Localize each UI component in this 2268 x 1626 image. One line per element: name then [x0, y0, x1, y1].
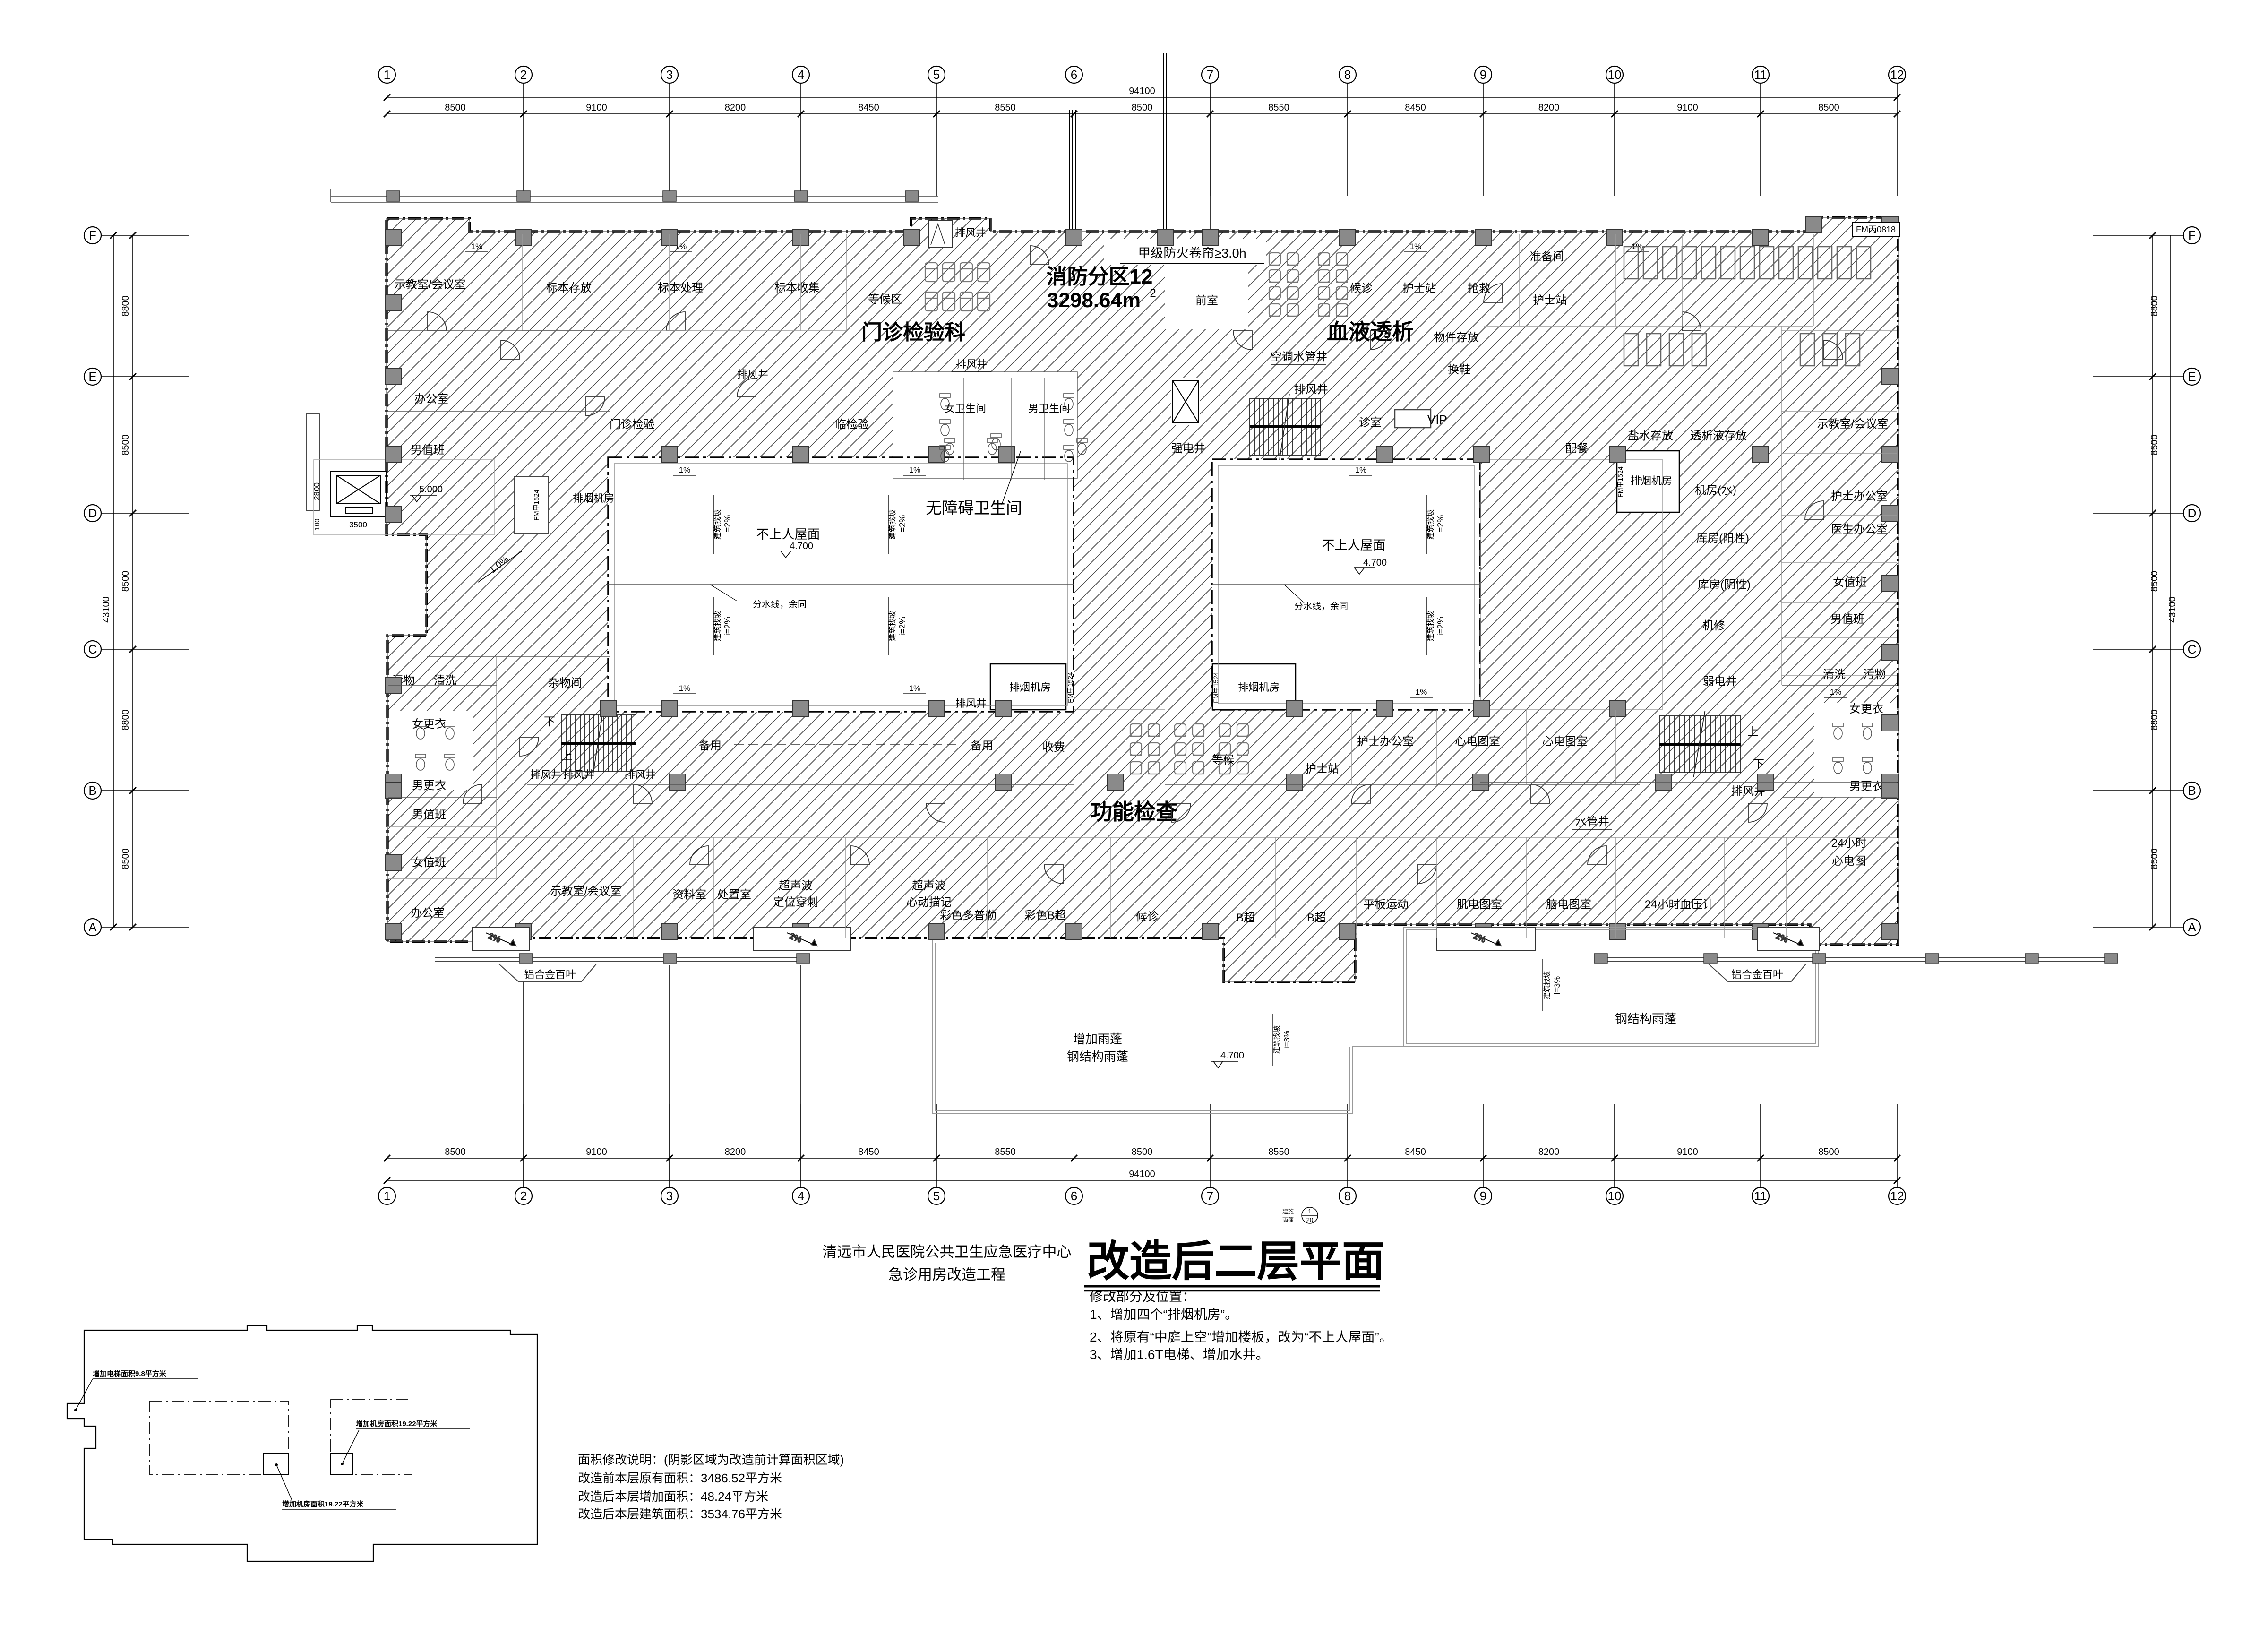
- svg-text:女更衣: 女更衣: [1849, 703, 1883, 715]
- svg-text:配餐: 配餐: [1565, 442, 1588, 455]
- svg-text:排烟机房: 排烟机房: [573, 492, 614, 504]
- svg-text:9100: 9100: [1677, 1147, 1698, 1157]
- svg-text:诊室: 诊室: [1359, 416, 1382, 429]
- svg-text:女值班: 女值班: [412, 856, 446, 869]
- svg-text:FM甲1524: FM甲1524: [1066, 672, 1074, 703]
- svg-text:FM丙0818: FM丙0818: [1856, 225, 1896, 234]
- svg-text:8550: 8550: [1268, 103, 1289, 113]
- svg-text:FM甲1524: FM甲1524: [533, 490, 540, 521]
- svg-text:1%: 1%: [679, 684, 691, 693]
- svg-text:9: 9: [1480, 1189, 1486, 1203]
- svg-text:候诊: 候诊: [1136, 911, 1159, 923]
- svg-text:D: D: [88, 506, 97, 520]
- svg-text:i=3%: i=3%: [1282, 1031, 1291, 1049]
- svg-text:下: 下: [544, 715, 555, 728]
- svg-text:下: 下: [1753, 758, 1764, 771]
- svg-text:1: 1: [384, 68, 390, 82]
- svg-text:脑电图室: 脑电图室: [1546, 898, 1591, 911]
- svg-text:护士办公室: 护士办公室: [1357, 735, 1414, 748]
- svg-text:不上人屋面: 不上人屋面: [1322, 538, 1386, 552]
- svg-text:i=3%: i=3%: [1553, 976, 1562, 994]
- svg-text:B超: B超: [1307, 912, 1326, 924]
- svg-text:甲级防火卷帘≥3.0h: 甲级防火卷帘≥3.0h: [1138, 246, 1246, 260]
- svg-text:2: 2: [520, 1189, 527, 1203]
- svg-text:临检验: 临检验: [835, 418, 869, 431]
- svg-text:彩色多普勒: 彩色多普勒: [940, 909, 997, 922]
- svg-text:B: B: [2188, 783, 2196, 798]
- svg-text:女卫生间: 女卫生间: [945, 403, 986, 414]
- svg-text:护士站: 护士站: [1305, 763, 1339, 775]
- svg-text:标本收集: 标本收集: [774, 282, 820, 294]
- svg-text:9100: 9100: [1677, 103, 1698, 113]
- svg-text:4: 4: [798, 1189, 804, 1203]
- svg-text:弱电井: 弱电井: [1703, 675, 1737, 688]
- svg-text:8500: 8500: [1132, 103, 1153, 113]
- svg-text:C: C: [88, 642, 97, 656]
- svg-text:8200: 8200: [725, 1147, 746, 1157]
- svg-text:A: A: [2188, 920, 2196, 934]
- svg-text:i=2%: i=2%: [723, 515, 732, 534]
- svg-text:A: A: [88, 920, 97, 934]
- svg-text:排风井: 排风井: [563, 769, 594, 781]
- svg-text:1: 1: [1308, 1208, 1311, 1215]
- svg-text:备用: 备用: [971, 740, 993, 752]
- svg-text:8: 8: [1344, 68, 1351, 82]
- svg-text:8450: 8450: [858, 103, 879, 113]
- svg-text:1%: 1%: [471, 242, 483, 251]
- svg-text:8450: 8450: [1405, 103, 1426, 113]
- svg-text:3298.64m: 3298.64m: [1047, 289, 1141, 312]
- svg-text:8500: 8500: [120, 434, 131, 456]
- svg-text:8500: 8500: [445, 1147, 466, 1157]
- svg-text:i=2%: i=2%: [898, 515, 907, 534]
- svg-text:8800: 8800: [2149, 709, 2160, 731]
- svg-text:建筑找坡: 建筑找坡: [1426, 509, 1435, 540]
- svg-text:示教室/会议室: 示教室/会议室: [395, 278, 466, 291]
- svg-text:8500: 8500: [445, 103, 466, 113]
- svg-text:8450: 8450: [858, 1147, 879, 1157]
- svg-text:排风井: 排风井: [530, 769, 561, 781]
- svg-text:男值班: 男值班: [1830, 613, 1864, 626]
- svg-text:2: 2: [520, 68, 527, 82]
- svg-text:8550: 8550: [1268, 1147, 1289, 1157]
- svg-text:9: 9: [1480, 68, 1486, 82]
- svg-text:分水线，余同: 分水线，余同: [753, 599, 807, 610]
- svg-text:分水线，余同: 分水线，余同: [1294, 601, 1348, 611]
- svg-text:4.700: 4.700: [790, 541, 813, 551]
- svg-text:1%: 1%: [1355, 465, 1367, 474]
- svg-text:5.000: 5.000: [419, 484, 443, 495]
- svg-text:办公室: 办公室: [411, 907, 445, 920]
- svg-text:8500: 8500: [2149, 434, 2160, 456]
- svg-text:无障碍卫生间: 无障碍卫生间: [926, 499, 1022, 517]
- svg-text:男卫生间: 男卫生间: [1028, 403, 1070, 414]
- svg-text:示教室/会议室: 示教室/会议室: [1817, 418, 1889, 430]
- svg-text:2: 2: [1150, 287, 1156, 300]
- svg-text:10: 10: [1608, 1189, 1622, 1203]
- svg-text:不上人屋面: 不上人屋面: [756, 527, 820, 542]
- svg-text:排风井: 排风井: [956, 358, 987, 370]
- svg-text:24小时: 24小时: [1831, 837, 1867, 850]
- svg-text:8550: 8550: [995, 1147, 1016, 1157]
- svg-text:建筑找坡: 建筑找坡: [1426, 611, 1435, 641]
- svg-text:清洗: 清洗: [1823, 668, 1846, 681]
- svg-text:门诊检验科: 门诊检验科: [861, 321, 965, 344]
- svg-text:上: 上: [1747, 725, 1759, 738]
- svg-text:机修: 机修: [1702, 619, 1725, 632]
- svg-text:上: 上: [561, 750, 573, 763]
- svg-text:B: B: [88, 783, 96, 798]
- svg-text:抢救: 抢救: [1468, 282, 1490, 295]
- svg-text:面积修改说明：(阴影区域为改造前计算面积区域): 面积修改说明：(阴影区域为改造前计算面积区域): [578, 1453, 844, 1467]
- svg-text:增加机房面积19.22平方米: 增加机房面积19.22平方米: [282, 1500, 364, 1508]
- svg-text:1: 1: [384, 1189, 390, 1203]
- svg-text:钢结构雨蓬: 钢结构雨蓬: [1615, 1012, 1676, 1026]
- svg-text:定位穿刺: 定位穿刺: [773, 896, 818, 909]
- svg-text:12: 12: [1890, 1189, 1904, 1203]
- svg-text:24小时血压计: 24小时血压计: [1645, 898, 1714, 911]
- svg-text:修改部分及位置：: 修改部分及位置：: [1090, 1289, 1195, 1304]
- svg-text:肌电图室: 肌电图室: [1457, 898, 1502, 911]
- svg-text:5: 5: [933, 1189, 940, 1203]
- svg-text:1%: 1%: [1416, 688, 1427, 697]
- svg-text:1、增加四个“排烟机房”。: 1、增加四个“排烟机房”。: [1090, 1307, 1238, 1322]
- svg-text:8550: 8550: [995, 103, 1016, 113]
- svg-text:盐水存放: 盐水存放: [1628, 430, 1673, 442]
- svg-text:护士站: 护士站: [1402, 282, 1436, 295]
- svg-text:9100: 9100: [586, 1147, 607, 1157]
- svg-text:物件存放: 物件存放: [1434, 331, 1479, 344]
- svg-text:8800: 8800: [120, 709, 131, 731]
- svg-text:前室: 前室: [1195, 294, 1218, 307]
- svg-text:8200: 8200: [1538, 103, 1560, 113]
- svg-text:雨蓬: 雨蓬: [1282, 1217, 1294, 1223]
- svg-text:增加雨蓬: 增加雨蓬: [1073, 1032, 1122, 1046]
- svg-text:排烟机房: 排烟机房: [1009, 681, 1051, 693]
- svg-text:7: 7: [1207, 68, 1213, 82]
- svg-text:建筑找坡: 建筑找坡: [1543, 971, 1551, 999]
- svg-text:E: E: [88, 370, 96, 384]
- svg-text:改造后本层建筑面积：3534.76平方米: 改造后本层建筑面积：3534.76平方米: [578, 1507, 782, 1521]
- svg-text:8200: 8200: [1538, 1147, 1560, 1157]
- svg-text:11: 11: [1754, 68, 1767, 82]
- svg-text:改造后本层增加面积：48.24平方米: 改造后本层增加面积：48.24平方米: [578, 1489, 768, 1504]
- svg-text:1%: 1%: [909, 684, 921, 693]
- svg-text:护士办公室: 护士办公室: [1831, 490, 1888, 503]
- svg-text:1%: 1%: [1830, 688, 1842, 697]
- svg-text:E: E: [2188, 370, 2196, 384]
- svg-text:8500: 8500: [120, 571, 131, 592]
- svg-text:彩色B超: 彩色B超: [1024, 909, 1066, 922]
- svg-text:6: 6: [1071, 68, 1077, 82]
- svg-text:标本存放: 标本存放: [546, 282, 592, 294]
- svg-text:2800: 2800: [312, 482, 321, 500]
- svg-text:护士站: 护士站: [1533, 294, 1567, 307]
- svg-text:8800: 8800: [120, 295, 131, 317]
- svg-text:收费: 收费: [1042, 741, 1065, 754]
- svg-text:办公室: 办公室: [414, 393, 448, 405]
- svg-text:排风井: 排风井: [955, 227, 986, 239]
- svg-text:排风井: 排风井: [955, 697, 987, 709]
- svg-text:机房(水): 机房(水): [1695, 484, 1736, 497]
- svg-text:男更衣: 男更衣: [412, 779, 446, 792]
- svg-text:3: 3: [666, 68, 673, 82]
- svg-text:1%: 1%: [679, 465, 691, 474]
- svg-text:排风井: 排风井: [1294, 383, 1328, 396]
- svg-text:6: 6: [1071, 1189, 1077, 1203]
- svg-text:i=2%: i=2%: [898, 617, 907, 636]
- svg-text:女值班: 女值班: [1833, 576, 1867, 589]
- svg-text:处置室: 处置室: [717, 888, 751, 901]
- svg-text:心电图室: 心电图室: [1542, 735, 1588, 748]
- svg-text:43100: 43100: [101, 596, 112, 623]
- svg-text:污物: 污物: [1863, 668, 1886, 681]
- svg-text:清远市人民医院公共卫生应急医疗中心: 清远市人民医院公共卫生应急医疗中心: [823, 1244, 1072, 1260]
- svg-text:4: 4: [798, 68, 804, 82]
- svg-text:i=2%: i=2%: [723, 617, 732, 636]
- svg-text:候诊: 候诊: [1350, 282, 1373, 295]
- svg-text:4.700: 4.700: [1220, 1050, 1244, 1061]
- svg-text:FM甲1524: FM甲1524: [1212, 672, 1220, 703]
- svg-text:改造后二层平面: 改造后二层平面: [1087, 1238, 1384, 1285]
- svg-text:女更衣: 女更衣: [412, 718, 446, 731]
- svg-text:8800: 8800: [2149, 295, 2160, 317]
- svg-text:F: F: [89, 228, 96, 242]
- svg-text:资料室: 资料室: [672, 888, 706, 901]
- svg-text:心动描记: 心动描记: [906, 896, 952, 909]
- svg-text:透析液存放: 透析液存放: [1690, 430, 1747, 442]
- svg-text:示教室/会议室: 示教室/会议室: [550, 885, 622, 898]
- svg-text:排风井: 排风井: [625, 769, 656, 781]
- svg-text:等候区: 等候区: [868, 293, 902, 306]
- svg-text:7: 7: [1207, 1189, 1213, 1203]
- svg-text:换鞋: 换鞋: [1448, 363, 1470, 376]
- svg-text:空调水管井: 空调水管井: [1271, 351, 1327, 363]
- svg-text:8450: 8450: [1405, 1147, 1426, 1157]
- svg-text:建筑找坡: 建筑找坡: [1273, 1025, 1281, 1054]
- svg-text:94100: 94100: [1129, 86, 1155, 96]
- svg-text:4.700: 4.700: [1363, 558, 1387, 568]
- svg-text:建筑找坡: 建筑找坡: [888, 611, 897, 641]
- svg-text:1%: 1%: [909, 465, 921, 474]
- svg-text:3: 3: [666, 1189, 673, 1203]
- svg-text:10: 10: [1608, 68, 1622, 82]
- svg-text:建筑找坡: 建筑找坡: [888, 509, 897, 540]
- svg-text:库房(阴性): 库房(阴性): [1698, 578, 1751, 591]
- svg-text:医生办公室: 医生办公室: [1831, 523, 1888, 536]
- svg-text:水管井: 水管井: [1575, 816, 1609, 828]
- svg-text:D: D: [2188, 506, 2197, 520]
- svg-text:功能检查: 功能检查: [1091, 800, 1177, 824]
- svg-text:i=2%: i=2%: [1436, 617, 1445, 636]
- svg-text:8500: 8500: [120, 848, 131, 869]
- svg-text:排烟机房: 排烟机房: [1631, 475, 1672, 487]
- svg-text:43100: 43100: [2167, 596, 2178, 623]
- svg-text:备用: 备用: [699, 740, 722, 752]
- svg-text:B超: B超: [1236, 912, 1255, 924]
- svg-text:8500: 8500: [1818, 1147, 1839, 1157]
- svg-text:铝合金百叶: 铝合金百叶: [524, 969, 576, 981]
- svg-text:消防分区12: 消防分区12: [1047, 265, 1153, 288]
- svg-text:3、增加1.6T电梯、增加水井。: 3、增加1.6T电梯、增加水井。: [1090, 1347, 1269, 1362]
- svg-text:F: F: [2188, 228, 2196, 242]
- svg-text:8500: 8500: [1818, 103, 1839, 113]
- svg-text:9100: 9100: [586, 103, 607, 113]
- svg-text:强电井: 强电井: [1171, 442, 1205, 455]
- svg-text:2、将原有“中庭上空”增加楼板，改为“不上人屋面”。: 2、将原有“中庭上空”增加楼板，改为“不上人屋面”。: [1090, 1330, 1392, 1344]
- svg-text:3500: 3500: [349, 520, 367, 529]
- svg-text:20: 20: [1306, 1216, 1313, 1223]
- svg-text:心电图室: 心电图室: [1455, 735, 1500, 748]
- svg-text:排烟机房: 排烟机房: [1238, 681, 1280, 693]
- svg-text:100: 100: [313, 518, 321, 530]
- svg-text:VIP: VIP: [1427, 413, 1447, 427]
- svg-text:8200: 8200: [725, 103, 746, 113]
- svg-text:8500: 8500: [2149, 848, 2160, 869]
- svg-text:增加电梯面积9.8平方米: 增加电梯面积9.8平方米: [93, 1369, 167, 1378]
- svg-text:94100: 94100: [1129, 1169, 1155, 1179]
- svg-text:男值班: 男值班: [411, 444, 445, 456]
- svg-text:C: C: [2188, 642, 2197, 656]
- svg-text:超声波: 超声波: [779, 879, 813, 892]
- svg-text:急诊用房改造工程: 急诊用房改造工程: [888, 1266, 1005, 1283]
- svg-text:建筑找坡: 建筑找坡: [713, 509, 722, 540]
- svg-text:5: 5: [933, 68, 940, 82]
- svg-text:8500: 8500: [1132, 1147, 1153, 1157]
- svg-text:FM甲1524: FM甲1524: [1616, 466, 1624, 498]
- svg-text:准备间: 准备间: [1530, 250, 1564, 263]
- svg-text:增加机房面积19.22平方米: 增加机房面积19.22平方米: [356, 1420, 438, 1428]
- svg-text:11: 11: [1754, 1189, 1767, 1203]
- svg-text:i=2%: i=2%: [1436, 515, 1445, 534]
- svg-text:钢结构雨蓬: 钢结构雨蓬: [1067, 1050, 1128, 1064]
- svg-text:建施: 建施: [1282, 1208, 1294, 1215]
- svg-text:1%: 1%: [1410, 242, 1422, 251]
- svg-text:建筑找坡: 建筑找坡: [713, 611, 722, 641]
- svg-text:铝合金百叶: 铝合金百叶: [1731, 969, 1783, 981]
- svg-text:心电图: 心电图: [1832, 855, 1866, 868]
- svg-text:库房(阳性): 库房(阳性): [1696, 532, 1749, 545]
- svg-text:男值班: 男值班: [412, 809, 446, 821]
- svg-text:8500: 8500: [2149, 571, 2160, 592]
- svg-text:超声波: 超声波: [912, 879, 946, 892]
- svg-text:8: 8: [1344, 1189, 1351, 1203]
- svg-text:杂物间: 杂物间: [548, 677, 582, 689]
- svg-text:12: 12: [1890, 68, 1904, 82]
- svg-text:改造前本层原有面积：3486.52平方米: 改造前本层原有面积：3486.52平方米: [578, 1471, 782, 1485]
- svg-text:平板运动: 平板运动: [1363, 898, 1409, 911]
- svg-text:门诊检验: 门诊检验: [610, 418, 655, 431]
- svg-text:标本处理: 标本处理: [658, 282, 703, 294]
